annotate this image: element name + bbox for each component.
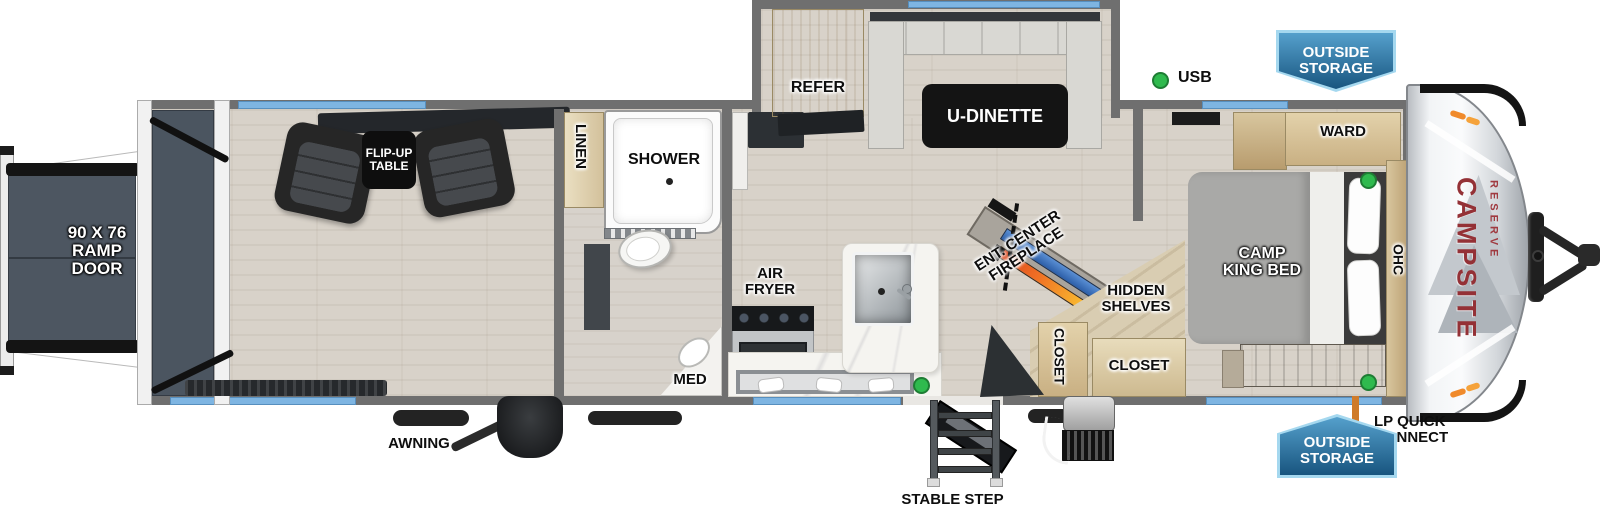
badge-face: OUTSIDE STORAGE <box>1280 417 1394 475</box>
range-cooktop <box>732 306 814 331</box>
u-dinette-label: U-DINETTE <box>947 106 1043 127</box>
bed-pillow-top <box>1347 177 1382 254</box>
ward-label: WARD <box>1300 124 1386 140</box>
bed-bench-side <box>1222 350 1244 388</box>
outside-storage-badge-top: OUTSIDE STORAGE <box>1276 30 1396 92</box>
med-label: MED <box>662 372 718 388</box>
brand-name: CAMPSITE <box>1452 166 1480 352</box>
dish-item <box>867 377 894 393</box>
window-bedroom-top <box>1202 101 1288 109</box>
stable-step-label: STABLE STEP <box>880 492 1025 508</box>
dinette-bench-right <box>1066 21 1102 149</box>
usb-dot-bed-top <box>1360 172 1377 189</box>
usb-dot-bed-bottom <box>1360 374 1377 391</box>
ohc-label: OHC <box>1391 244 1406 275</box>
awning-arm-mid <box>588 411 682 425</box>
outside-storage-badge-bottom: OUTSIDE STORAGE <box>1277 414 1397 478</box>
dish-item <box>815 377 842 394</box>
entry-threshold <box>903 396 1003 405</box>
window-slide-top <box>908 1 1100 8</box>
step-rung <box>938 466 992 473</box>
step-foot <box>990 478 1003 487</box>
refer-label: REFER <box>778 80 858 97</box>
step-rung <box>938 448 992 455</box>
step-rail-left <box>930 400 938 480</box>
hitch-arm-lower <box>1538 260 1589 296</box>
patio-rail-bottom <box>6 340 140 353</box>
usb-dot-kitchen <box>913 377 930 394</box>
step-rung <box>938 412 992 419</box>
garage-chair-right-cushion <box>427 137 499 208</box>
awning-arm-left <box>393 410 469 426</box>
patio-frame-cap-bottom <box>0 366 14 375</box>
hidden-shelves-label: HIDDENSHELVES <box>1080 283 1192 315</box>
bedroom-ohc-left <box>1233 112 1287 170</box>
refrigerator <box>772 9 864 117</box>
sink-drain <box>878 288 885 295</box>
dinette-bench-left <box>868 21 904 149</box>
patio-frame-cap-top <box>0 146 14 155</box>
dinette-valance <box>870 12 1100 21</box>
window-garage-top <box>238 101 426 109</box>
bath-vanity-panel <box>584 244 610 330</box>
power-cord <box>1039 416 1074 465</box>
hitch-jack-knob <box>1532 250 1544 262</box>
badge-face: OUTSIDE STORAGE <box>1279 33 1393 89</box>
ramp-door-label: 90 X 76RAMPDOOR <box>38 224 156 278</box>
linen-label: LINEN <box>572 124 588 169</box>
wall-living-bedroom <box>1133 109 1143 221</box>
floorplan-canvas: 90 X 76RAMPDOOR FLIP-UP TABLE LINEN SHOW… <box>0 0 1600 526</box>
usb-legend-dot <box>1152 72 1169 89</box>
brand-series: RESERVE <box>1487 172 1499 268</box>
bed-pillow-bottom <box>1347 259 1382 336</box>
step-foot <box>927 478 940 487</box>
air-fryer-label: AIRFRYER <box>728 266 812 298</box>
shower-tray <box>613 118 713 224</box>
garage-chair-left-cushion <box>288 140 362 214</box>
hitch-coupler-stub <box>1594 249 1600 262</box>
kitchen-pantry <box>732 112 748 190</box>
closet-bedroom-label: CLOSET <box>1094 358 1184 374</box>
usb-legend-label: USB <box>1178 70 1228 87</box>
flip-up-table-label-box: FLIP-UP TABLE <box>362 131 416 189</box>
window-kitchen-bottom <box>753 397 901 405</box>
dinette-table: U-DINETTE <box>922 84 1068 148</box>
exterior-griddle <box>497 396 563 458</box>
shower-label: SHOWER <box>616 152 712 169</box>
bedroom-tv-bar <box>1172 112 1220 125</box>
closet-front-label: CLOSET <box>1052 328 1067 385</box>
refrigerator-vent <box>777 110 864 136</box>
step-rung <box>938 430 992 437</box>
awning-label: AWNING <box>380 436 458 452</box>
wall-garage-bath <box>554 109 564 396</box>
window-garage-bottom <box>170 397 356 405</box>
patio-rail-top <box>6 163 140 176</box>
shower-drain <box>666 178 673 185</box>
step-rail-right <box>992 400 1000 480</box>
ramp-door-panel <box>152 110 214 396</box>
camp-king-bed-label: CAMPKING BED <box>1196 246 1328 280</box>
garage-track <box>185 380 387 396</box>
